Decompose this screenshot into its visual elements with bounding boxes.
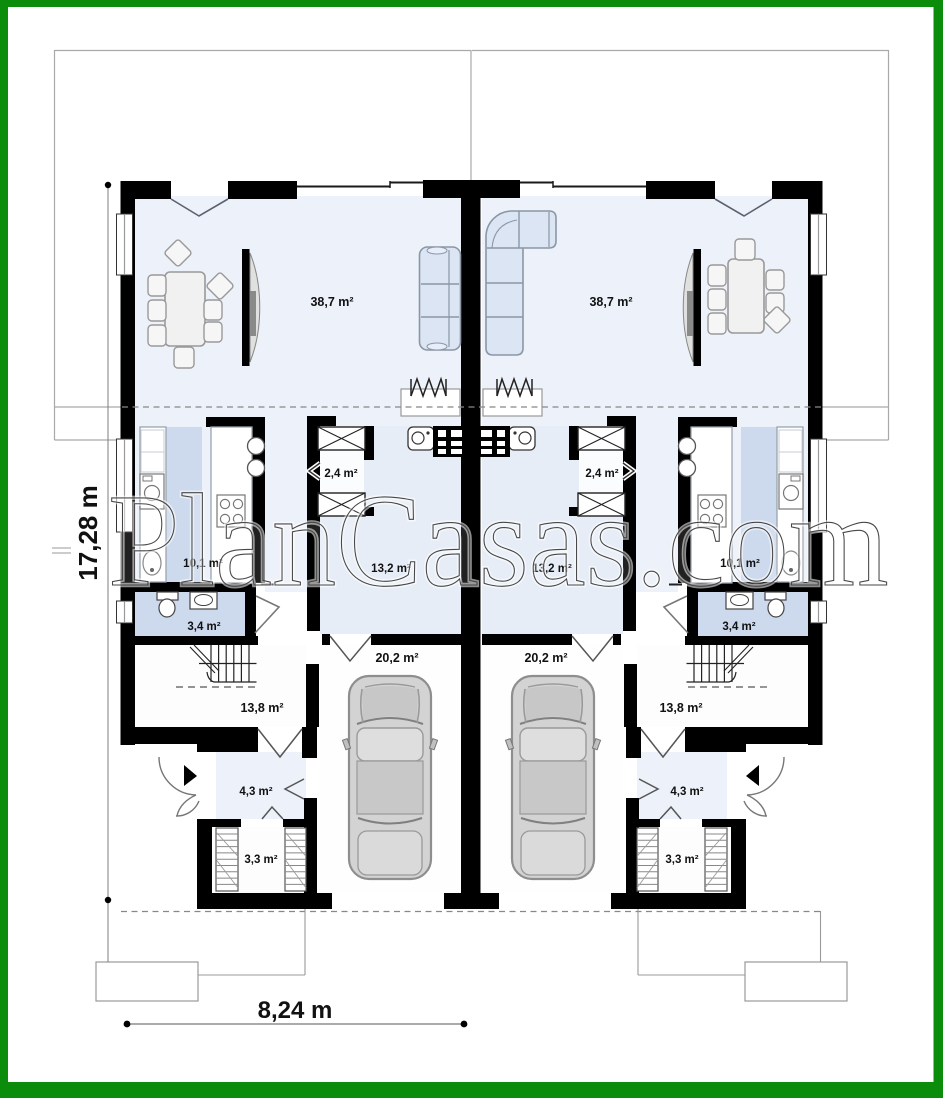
svg-text:PlanCasas.com: PlanCasas.com	[108, 468, 889, 615]
svg-text:8,24 m: 8,24 m	[258, 997, 333, 1024]
svg-text:38,7 m²: 38,7 m²	[310, 295, 353, 309]
svg-text:20,2 m²: 20,2 m²	[375, 651, 418, 665]
svg-text:4,3 m²: 4,3 m²	[670, 786, 703, 798]
svg-text:3,3 m²: 3,3 m²	[665, 854, 698, 866]
svg-text:17,28 m: 17,28 m	[73, 485, 103, 580]
svg-text:3,3 m²: 3,3 m²	[244, 854, 277, 866]
svg-text:13,8 m²: 13,8 m²	[659, 701, 702, 715]
svg-text:4,3 m²: 4,3 m²	[239, 786, 272, 798]
svg-text:38,7 m²: 38,7 m²	[589, 295, 632, 309]
svg-text:3,4 m²: 3,4 m²	[187, 621, 220, 633]
svg-text:13,8 m²: 13,8 m²	[240, 701, 283, 715]
svg-text:3,4 m²: 3,4 m²	[722, 621, 755, 633]
svg-text:20,2 m²: 20,2 m²	[524, 651, 567, 665]
